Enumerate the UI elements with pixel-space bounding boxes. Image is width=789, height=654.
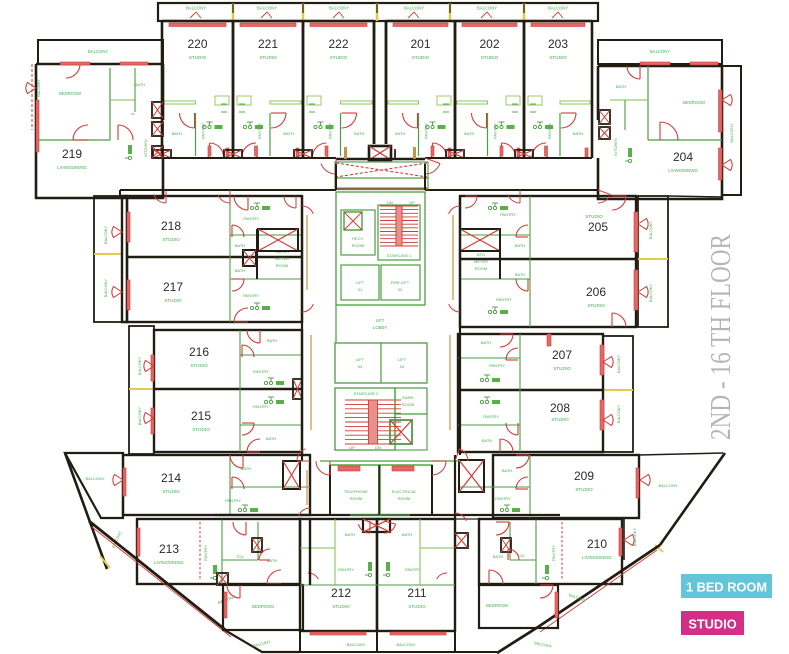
svg-text:202: 202 <box>479 37 499 51</box>
svg-text:STUDIO: STUDIO <box>551 417 569 422</box>
svg-text:02: 02 <box>398 287 403 292</box>
svg-text:213: 213 <box>159 542 179 556</box>
svg-text:BATH: BATH <box>464 131 474 136</box>
svg-text:BATH: BATH <box>515 243 525 248</box>
svg-text:STUDIO: STUDIO <box>553 366 571 371</box>
svg-text:STUDIO: STUDIO <box>192 427 210 432</box>
svg-text:PANTRY: PANTRY <box>496 297 512 302</box>
svg-text:BATH: BATH <box>573 131 583 136</box>
svg-text:BATH: BATH <box>266 436 276 441</box>
svg-text:PANTRY: PANTRY <box>203 545 208 561</box>
svg-text:BALCONY: BALCONY <box>329 6 349 11</box>
svg-text:BATH: BATH <box>502 468 512 473</box>
svg-text:UP: UP <box>349 445 355 450</box>
svg-text:BATH: BATH <box>616 84 626 89</box>
svg-text:210: 210 <box>587 537 607 551</box>
svg-text:BALCONY: BALCONY <box>346 642 365 647</box>
svg-text:STUDIO: STUDIO <box>585 214 603 219</box>
svg-text:KITCHEN: KITCHEN <box>613 138 618 156</box>
svg-text:PANTRY: PANTRY <box>405 567 421 572</box>
svg-text:BATH: BATH <box>235 268 245 273</box>
svg-text:ELECTRICAL: ELECTRICAL <box>392 489 417 494</box>
svg-text:BEDROOM: BEDROOM <box>486 603 508 608</box>
svg-text:214: 214 <box>161 471 181 485</box>
svg-text:ROOM: ROOM <box>352 243 364 248</box>
svg-text:STUDIO: STUDIO <box>587 303 605 308</box>
svg-text:STUDIO: STUDIO <box>164 298 182 303</box>
svg-text:STUDIO: STUDIO <box>575 487 593 492</box>
svg-text:PANTRY: PANTRY <box>253 369 269 374</box>
svg-text:205: 205 <box>588 220 608 234</box>
svg-text:TELEPHONE: TELEPHONE <box>344 489 369 494</box>
svg-text:216: 216 <box>189 345 209 359</box>
svg-text:PANTRY: PANTRY <box>551 545 556 561</box>
svg-text:STUDIO: STUDIO <box>190 363 208 368</box>
svg-text:222: 222 <box>328 37 348 51</box>
svg-text:BATH: BATH <box>235 243 245 248</box>
svg-text:208: 208 <box>550 401 570 415</box>
svg-text:METER: METER <box>474 259 488 264</box>
svg-text:ROOM: ROOM <box>398 496 410 501</box>
svg-text:01: 01 <box>358 287 363 292</box>
svg-text:BALCONY: BALCONY <box>37 79 41 97</box>
svg-text:BALCONY: BALCONY <box>88 49 108 54</box>
svg-text:220: 220 <box>187 37 207 51</box>
svg-text:BATH: BATH <box>135 82 145 87</box>
svg-text:PANTRY: PANTRY <box>243 216 259 221</box>
svg-text:1 BED ROOM: 1 BED ROOM <box>686 580 767 595</box>
svg-text:STUDIO: STUDIO <box>189 55 207 60</box>
svg-text:BATH: BATH <box>354 131 364 136</box>
svg-text:BALCONY: BALCONY <box>649 220 653 239</box>
svg-text:2ND - 16 TH FLOOR: 2ND - 16 TH FLOOR <box>706 234 737 440</box>
svg-text:ROOM: ROOM <box>475 266 487 271</box>
svg-text:BEDROOM: BEDROOM <box>59 91 81 96</box>
svg-text:BALCONY: BALCONY <box>617 354 621 373</box>
svg-text:04: 04 <box>400 364 405 369</box>
svg-text:209: 209 <box>574 469 594 483</box>
svg-text:BATH: BATH <box>172 131 182 136</box>
svg-text:221: 221 <box>258 37 278 51</box>
svg-text:BATH: BATH <box>283 131 293 136</box>
svg-text:STUDIO: STUDIO <box>688 617 736 632</box>
svg-text:BALCONY: BALCONY <box>729 123 734 142</box>
svg-text:STUDIO: STUDIO <box>481 55 499 60</box>
svg-text:LIFT: LIFT <box>398 357 407 362</box>
svg-text:203: 203 <box>548 37 568 51</box>
svg-text:BALCONY: BALCONY <box>396 642 415 647</box>
svg-text:STUDIO: STUDIO <box>259 55 277 60</box>
svg-text:BALCONY: BALCONY <box>138 406 142 425</box>
svg-text:201: 201 <box>410 37 430 51</box>
svg-text:BALCONY: BALCONY <box>617 404 621 423</box>
svg-text:GARB.: GARB. <box>402 395 414 400</box>
svg-text:DN: DN <box>375 445 381 450</box>
svg-text:PANTRY: PANTRY <box>495 496 511 501</box>
svg-text:BALCONY: BALCONY <box>104 278 108 297</box>
svg-text:METER: METER <box>275 256 289 261</box>
svg-text:STUDIO: STUDIO <box>332 604 350 609</box>
svg-text:BALCONY: BALCONY <box>658 483 677 488</box>
svg-text:204: 204 <box>673 150 693 164</box>
svg-text:BALCONY: BALCONY <box>85 476 104 481</box>
svg-text:03: 03 <box>358 364 363 369</box>
svg-text:BATH: BATH <box>402 532 412 537</box>
svg-text:KITCHEN: KITCHEN <box>143 139 148 157</box>
svg-text:LIVING/DINING: LIVING/DINING <box>668 168 698 173</box>
svg-text:BALCONY: BALCONY <box>477 6 497 11</box>
svg-text:UP: UP <box>409 200 415 205</box>
svg-text:BATH: BATH <box>515 272 525 277</box>
svg-text:STUDIO: STUDIO <box>162 237 180 242</box>
svg-text:PANTRY: PANTRY <box>338 567 354 572</box>
svg-text:LIFT: LIFT <box>356 280 365 285</box>
svg-text:FIRE LIFT: FIRE LIFT <box>391 280 410 285</box>
svg-text:STUDIO: STUDIO <box>412 55 430 60</box>
svg-text:BATH: BATH <box>493 554 503 559</box>
svg-text:PANTRY: PANTRY <box>483 414 499 419</box>
svg-text:212: 212 <box>331 586 351 600</box>
svg-text:PANTRY: PANTRY <box>253 404 269 409</box>
svg-text:206: 206 <box>586 285 606 299</box>
svg-text:207: 207 <box>552 348 572 362</box>
svg-text:BATH: BATH <box>481 340 491 345</box>
svg-text:STUDIO: STUDIO <box>408 604 426 609</box>
svg-text:BATH: BATH <box>267 338 277 343</box>
svg-text:BATH: BATH <box>345 532 355 537</box>
svg-text:DN: DN <box>387 200 393 205</box>
svg-text:ROOM: ROOM <box>402 402 414 407</box>
svg-text:STUDIO: STUDIO <box>549 55 567 60</box>
svg-text:211: 211 <box>407 586 426 600</box>
svg-text:RECY.: RECY. <box>352 236 364 241</box>
svg-text:215: 215 <box>191 409 211 423</box>
svg-text:BEDROOM: BEDROOM <box>252 604 274 609</box>
svg-text:PANTRY: PANTRY <box>489 363 505 368</box>
svg-text:BALCONY: BALCONY <box>649 283 653 302</box>
svg-text:LIVING/DINING: LIVING/DINING <box>582 555 612 560</box>
svg-text:STUDIO: STUDIO <box>162 489 180 494</box>
svg-text:LIFT: LIFT <box>356 357 365 362</box>
svg-text:STUDIO: STUDIO <box>330 55 348 60</box>
svg-text:STAIRCASE 1: STAIRCASE 1 <box>387 254 411 258</box>
svg-text:PANTRY: PANTRY <box>243 293 259 298</box>
svg-text:BEDROOM: BEDROOM <box>683 100 705 105</box>
svg-text:LIVING/DINING: LIVING/DINING <box>154 560 184 565</box>
svg-text:ROOM: ROOM <box>276 263 288 268</box>
svg-text:LOBBY: LOBBY <box>373 325 387 330</box>
svg-text:217: 217 <box>163 280 183 294</box>
svg-text:BALCONY: BALCONY <box>186 6 206 11</box>
svg-text:BTU: BTU <box>477 252 485 257</box>
svg-text:TOL: TOL <box>236 554 244 559</box>
svg-text:LIVING/DINING: LIVING/DINING <box>57 165 87 170</box>
svg-text:ROOM: ROOM <box>350 496 362 501</box>
svg-text:BALCONY: BALCONY <box>104 225 108 244</box>
svg-text:PANTRY: PANTRY <box>225 498 241 503</box>
svg-text:BALCONY: BALCONY <box>138 356 142 375</box>
svg-text:BALCONY: BALCONY <box>257 6 277 11</box>
svg-text:LIFT: LIFT <box>376 318 385 323</box>
svg-text:BALCONY: BALCONY <box>404 6 424 11</box>
svg-text:219: 219 <box>62 147 82 161</box>
svg-text:PANTRY: PANTRY <box>500 212 516 217</box>
svg-text:BALCONY: BALCONY <box>650 49 670 54</box>
svg-text:BATH: BATH <box>482 438 492 443</box>
svg-text:BALCONY: BALCONY <box>548 6 568 11</box>
svg-text:STAIRCASE 2: STAIRCASE 2 <box>354 392 378 396</box>
svg-text:218: 218 <box>161 219 181 233</box>
svg-text:BATH: BATH <box>395 131 405 136</box>
